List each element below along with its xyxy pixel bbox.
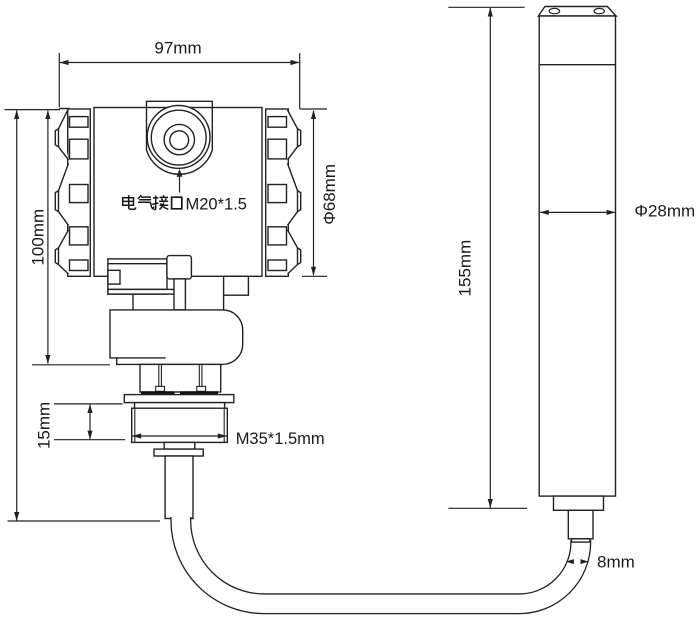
svg-text:Φ28mm: Φ28mm — [634, 202, 695, 221]
svg-text:M35*1.5mm: M35*1.5mm — [236, 430, 325, 448]
svg-text:97mm: 97mm — [154, 39, 201, 58]
svg-text:8mm: 8mm — [597, 553, 635, 572]
svg-text:M20*1.5: M20*1.5 — [186, 196, 247, 214]
svg-text:Φ68mm: Φ68mm — [320, 164, 339, 225]
svg-text:100mm: 100mm — [29, 209, 48, 266]
svg-text:155mm: 155mm — [456, 240, 475, 297]
svg-text:15mm: 15mm — [35, 402, 54, 449]
